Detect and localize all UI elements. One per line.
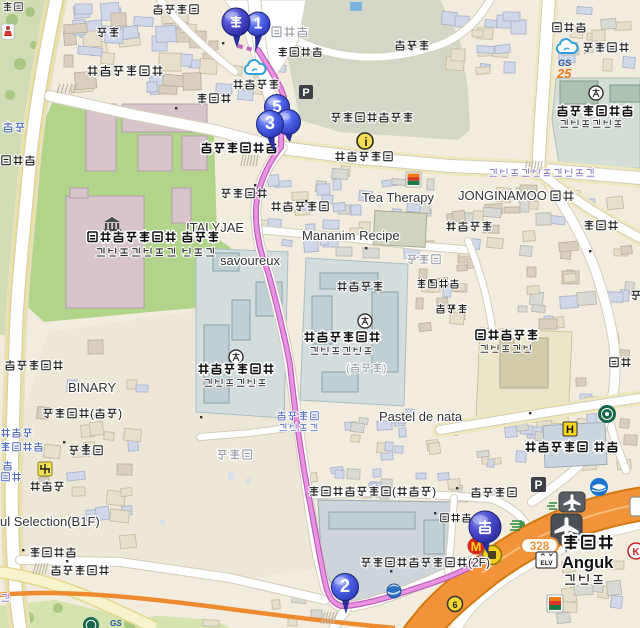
svg-text:25: 25 [556, 66, 572, 81]
svg-text:(: ( [90, 406, 94, 420]
svg-text:H: H [566, 424, 574, 436]
svg-text:2: 2 [340, 576, 350, 596]
svg-text:savoureux: savoureux [220, 253, 280, 268]
svg-text:K: K [632, 547, 640, 558]
svg-text:3: 3 [265, 113, 275, 133]
svg-text:): ) [118, 406, 122, 420]
svg-text:P: P [534, 478, 542, 492]
svg-text:BINARY: BINARY [68, 380, 116, 395]
svg-text:Pastel de nata: Pastel de nata [379, 409, 463, 424]
svg-text:Mananim Recipe: Mananim Recipe [302, 228, 400, 243]
svg-text:JONGINAMOO: JONGINAMOO [458, 188, 547, 203]
svg-text:(: ( [346, 363, 350, 375]
svg-text:Tea Therapy: Tea Therapy [362, 190, 435, 205]
svg-text:): ) [383, 363, 387, 375]
svg-text:1: 1 [254, 16, 263, 33]
svg-text:6: 6 [452, 600, 457, 610]
svg-text:ul Selection(B1F): ul Selection(B1F) [0, 514, 100, 529]
svg-text:ELV: ELV [540, 560, 553, 567]
svg-text:328: 328 [530, 541, 550, 553]
svg-text:i: i [364, 135, 367, 149]
svg-text:Anguk: Anguk [562, 554, 614, 572]
svg-text:): ) [432, 484, 436, 498]
svg-text:(: ( [392, 484, 396, 498]
svg-text:GS: GS [110, 619, 122, 628]
svg-text:P: P [302, 87, 309, 99]
svg-text:(2F): (2F) [468, 555, 490, 569]
